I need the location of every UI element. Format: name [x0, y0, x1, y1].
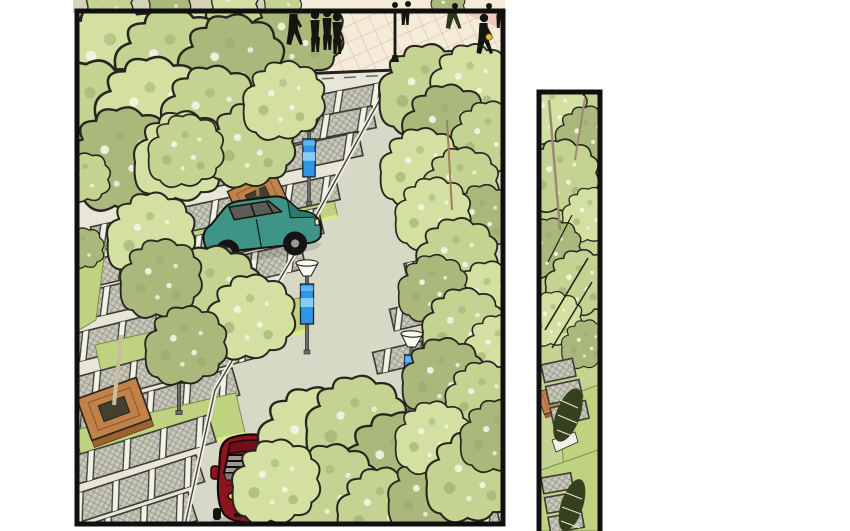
main-panel [17, 0, 536, 531]
yellow-bag [486, 34, 492, 40]
tree-column-right [379, 44, 533, 434]
presentation-canvas [0, 0, 850, 531]
tree [148, 114, 223, 187]
tree [460, 399, 535, 472]
pedestrian-head [392, 2, 398, 8]
suv-headlight [315, 219, 320, 225]
tree [145, 306, 227, 385]
pedestrian-head [486, 3, 492, 9]
pedestrian-head [452, 3, 458, 9]
side-panel-content [518, 78, 619, 531]
suv-hubcap [290, 238, 300, 248]
main-panel-content [17, 0, 536, 531]
tree [243, 61, 325, 140]
pedestrian-head [405, 1, 411, 7]
rendering-svg [0, 0, 850, 531]
side-panel [518, 78, 619, 531]
car-wheel [213, 508, 221, 520]
tree [232, 440, 320, 525]
